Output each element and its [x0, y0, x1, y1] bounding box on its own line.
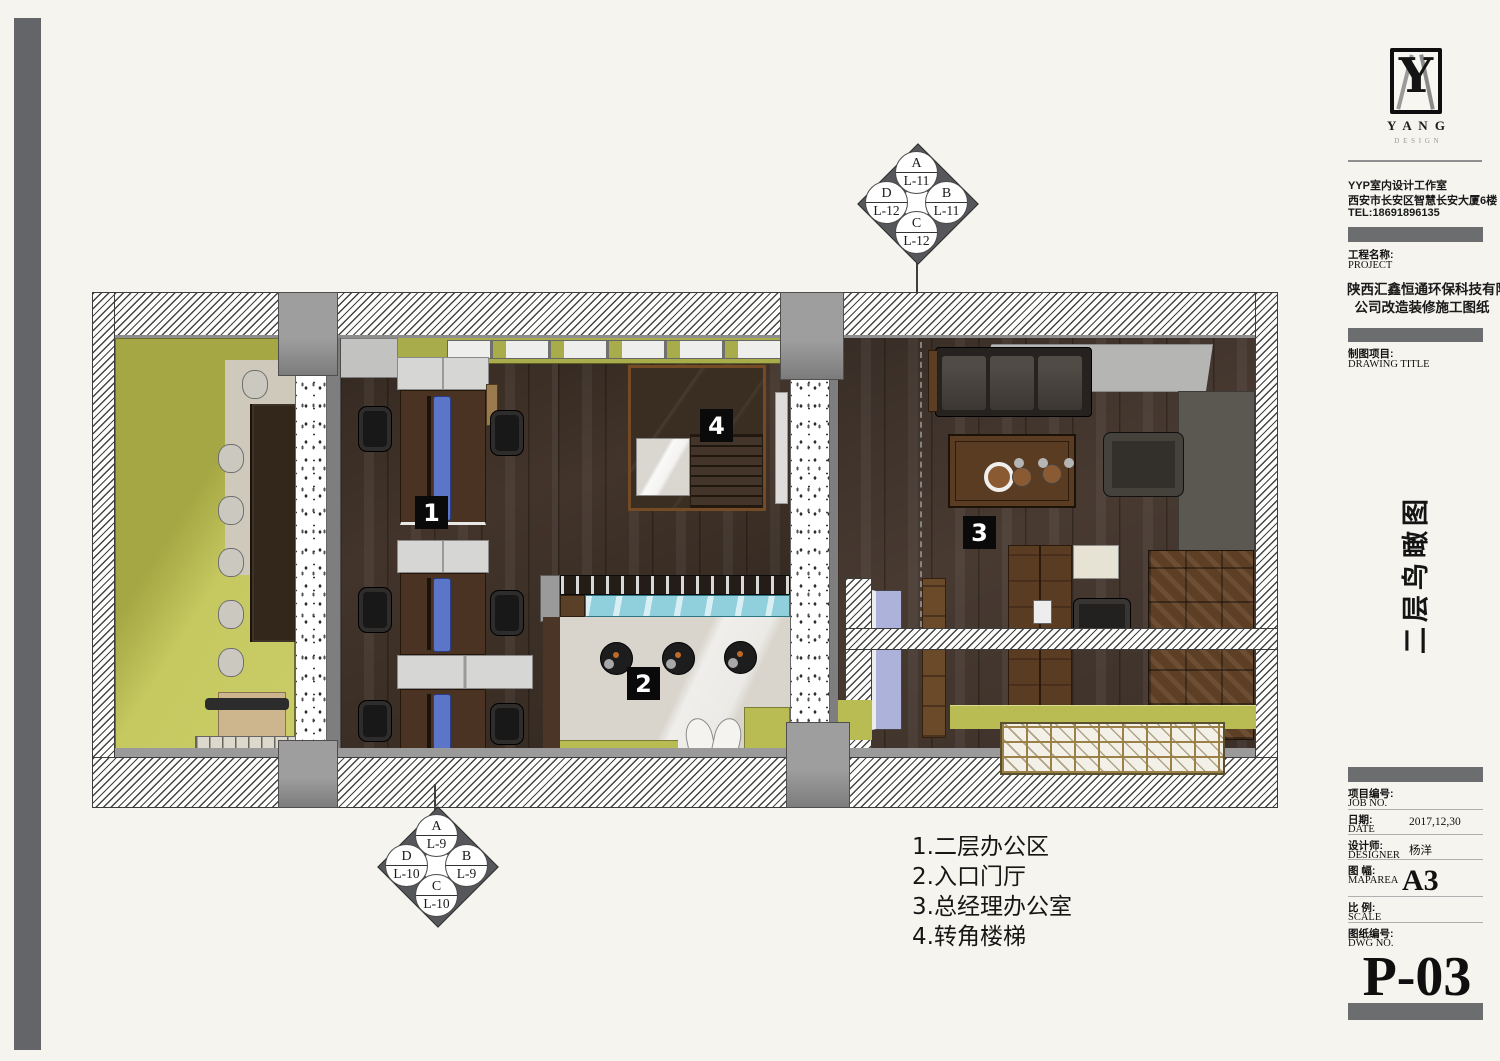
office-chair: [358, 406, 392, 452]
sofa-arm-wood: [928, 350, 938, 412]
table-stool: [604, 659, 614, 669]
row-divider: [1348, 922, 1483, 923]
table-decor: [613, 652, 619, 658]
table-decor: [737, 651, 743, 657]
tea-table: [250, 404, 298, 642]
row-divider: [1348, 896, 1483, 897]
legend-item: 4.转角楼梯: [912, 922, 1072, 952]
studio-logo: Y: [1390, 48, 1442, 114]
column: [278, 292, 338, 376]
tea-chair: [218, 496, 244, 525]
pillar-right-side-face: [830, 338, 838, 757]
row-divider: [1348, 834, 1483, 835]
office-chair: [358, 700, 392, 742]
armchair: [1103, 432, 1184, 497]
maparea-label-en: MAPAREA: [1348, 875, 1398, 886]
wood-lattice: [1000, 722, 1225, 775]
rail-gray-box: [540, 575, 560, 622]
project-label-en: PROJECT: [1348, 260, 1392, 271]
stair-skylight-glass: [636, 438, 690, 496]
desk-panel: [397, 357, 489, 390]
wall-left: [92, 292, 115, 808]
marker-letter: D: [386, 845, 427, 866]
project-name-line1: 陕西汇鑫恒通环保科技有限: [1347, 278, 1497, 298]
desk: [400, 573, 486, 655]
void-gray-block: [1178, 391, 1255, 553]
marker-bubble-d: D L-12: [865, 181, 908, 224]
tea-bench-dark: [205, 698, 289, 710]
tray-dot: [1038, 458, 1048, 468]
section-bar: [1348, 328, 1483, 342]
entry-round-table: [724, 641, 757, 674]
row-divider: [1348, 809, 1483, 810]
tray-cup: [1012, 467, 1032, 487]
logo-brand-sub: D E S I G N: [1372, 137, 1462, 145]
monitor-screen: [433, 694, 451, 752]
entry-green-box: [744, 707, 790, 749]
slat-railing: [560, 575, 790, 595]
column: [780, 292, 844, 380]
legend-item: 3.总经理办公室: [912, 892, 1072, 922]
desk-panel: [397, 655, 533, 689]
section-bar: [1348, 227, 1483, 242]
studio-address: 西安市长安区智慧长安大厦6楼: [1348, 192, 1497, 208]
stair-shelf-white: [775, 392, 788, 504]
pillar-terrazzo-right: [790, 338, 830, 757]
drawing-label-en: DRAWING TITLE: [1348, 359, 1430, 370]
desk-side-panel: [1073, 545, 1119, 579]
cut-wall-band: [845, 628, 1278, 650]
tea-chair: [218, 548, 244, 577]
marker-level: L-10: [416, 896, 457, 916]
marker-letter: B: [926, 182, 967, 203]
title-block: Y Y A N G D E S I G N YYP室内设计工作室 西安市长安区智…: [1347, 0, 1497, 1061]
project-name-line2: 公司改造装修施工图纸: [1347, 296, 1497, 316]
plan-label-manager: 3: [963, 516, 996, 549]
rail-wood-end: [560, 595, 585, 617]
section-bar: [1348, 1003, 1483, 1020]
section-bar: [1348, 767, 1483, 782]
stair-steps: [690, 434, 763, 508]
entry-wall-wood: [543, 617, 560, 757]
marker-bubble-d: D L-10: [385, 844, 428, 887]
elevation-marker-lower: A L-9 B L-9 C L-10 D L-10: [375, 806, 499, 926]
sofa-cushion: [942, 356, 986, 410]
marker-level: L-10: [386, 866, 427, 886]
desk-panel: [397, 540, 489, 573]
designer-value: 杨洋: [1409, 842, 1432, 858]
tea-chair: [218, 648, 244, 677]
wall-right: [1255, 292, 1278, 808]
legend-item: 2.入口门厅: [912, 862, 1072, 892]
date-value: 2017,12,30: [1409, 816, 1461, 828]
sofa-cushion: [990, 356, 1034, 410]
divider: [1348, 160, 1482, 162]
office-chair: [490, 703, 524, 745]
marker-level: L-12: [866, 203, 907, 223]
pillar-terrazzo-left: [295, 338, 327, 757]
clerestory-windows: [447, 340, 787, 359]
desk: [400, 689, 486, 755]
monitor-divider: [427, 694, 431, 750]
marker-letter: A: [896, 152, 937, 173]
studio-phone: TEL:18691896135: [1348, 207, 1440, 219]
entry-round-table: [662, 642, 695, 675]
table-stool: [666, 659, 676, 669]
tea-chair: [242, 370, 268, 399]
glass-door-lavender: [872, 590, 902, 730]
office-chair: [358, 587, 392, 633]
glass-balustrade: [585, 595, 790, 617]
tea-chair: [218, 444, 244, 473]
marker-letter: D: [866, 182, 907, 203]
plan-label-stair: 4: [700, 409, 733, 442]
table-decor: [675, 652, 681, 658]
marker-letter: B: [446, 845, 487, 866]
floor-plan: 1 2 3 4: [92, 292, 1278, 808]
row-divider: [1348, 859, 1483, 860]
plan-label-hall: 2: [627, 667, 660, 700]
studio-name: YYP室内设计工作室: [1348, 177, 1447, 193]
drawing-title-vertical: 二层鸟瞰图: [1394, 504, 1430, 654]
tray-ring: [984, 462, 1014, 492]
laptop: [1033, 600, 1052, 624]
tray-dot: [1014, 458, 1024, 468]
monitor-screen: [433, 578, 451, 652]
wall-top: [92, 292, 1278, 336]
side-cabinet: [922, 578, 946, 738]
sofa-cushion: [1038, 356, 1082, 410]
sheet-number: P-03: [1347, 945, 1487, 1009]
tea-chair: [218, 600, 244, 629]
logo-monogram: Y: [1394, 48, 1438, 104]
marker-letter: A: [416, 815, 457, 836]
sheet-left-bar: [14, 18, 41, 1050]
column: [786, 722, 850, 808]
tray-dot: [1064, 458, 1074, 468]
logo-brand: Y A N G: [1372, 118, 1462, 134]
column: [278, 740, 338, 808]
pillar-left-side-face: [327, 338, 341, 757]
wall-panel-gray: [340, 338, 398, 378]
legend-item: 1.二层办公区: [912, 832, 1072, 862]
table-stool: [728, 658, 738, 668]
legend: 1.二层办公区 2.入口门厅 3.总经理办公室 4.转角楼梯: [912, 832, 1072, 952]
sofa: [935, 347, 1092, 417]
coffee-table: [948, 434, 1076, 508]
marker-level: L-12: [896, 233, 937, 253]
office-chair: [490, 410, 524, 456]
office-chair: [490, 590, 524, 636]
plan-label-office: 1: [415, 496, 448, 529]
monitor-divider: [427, 578, 431, 650]
jobno-label-en: JOB NO.: [1348, 798, 1387, 809]
maparea-value: A3: [1402, 864, 1439, 898]
elevation-marker-upper: A L-11 B L-11 C L-12 D L-12: [855, 143, 979, 263]
